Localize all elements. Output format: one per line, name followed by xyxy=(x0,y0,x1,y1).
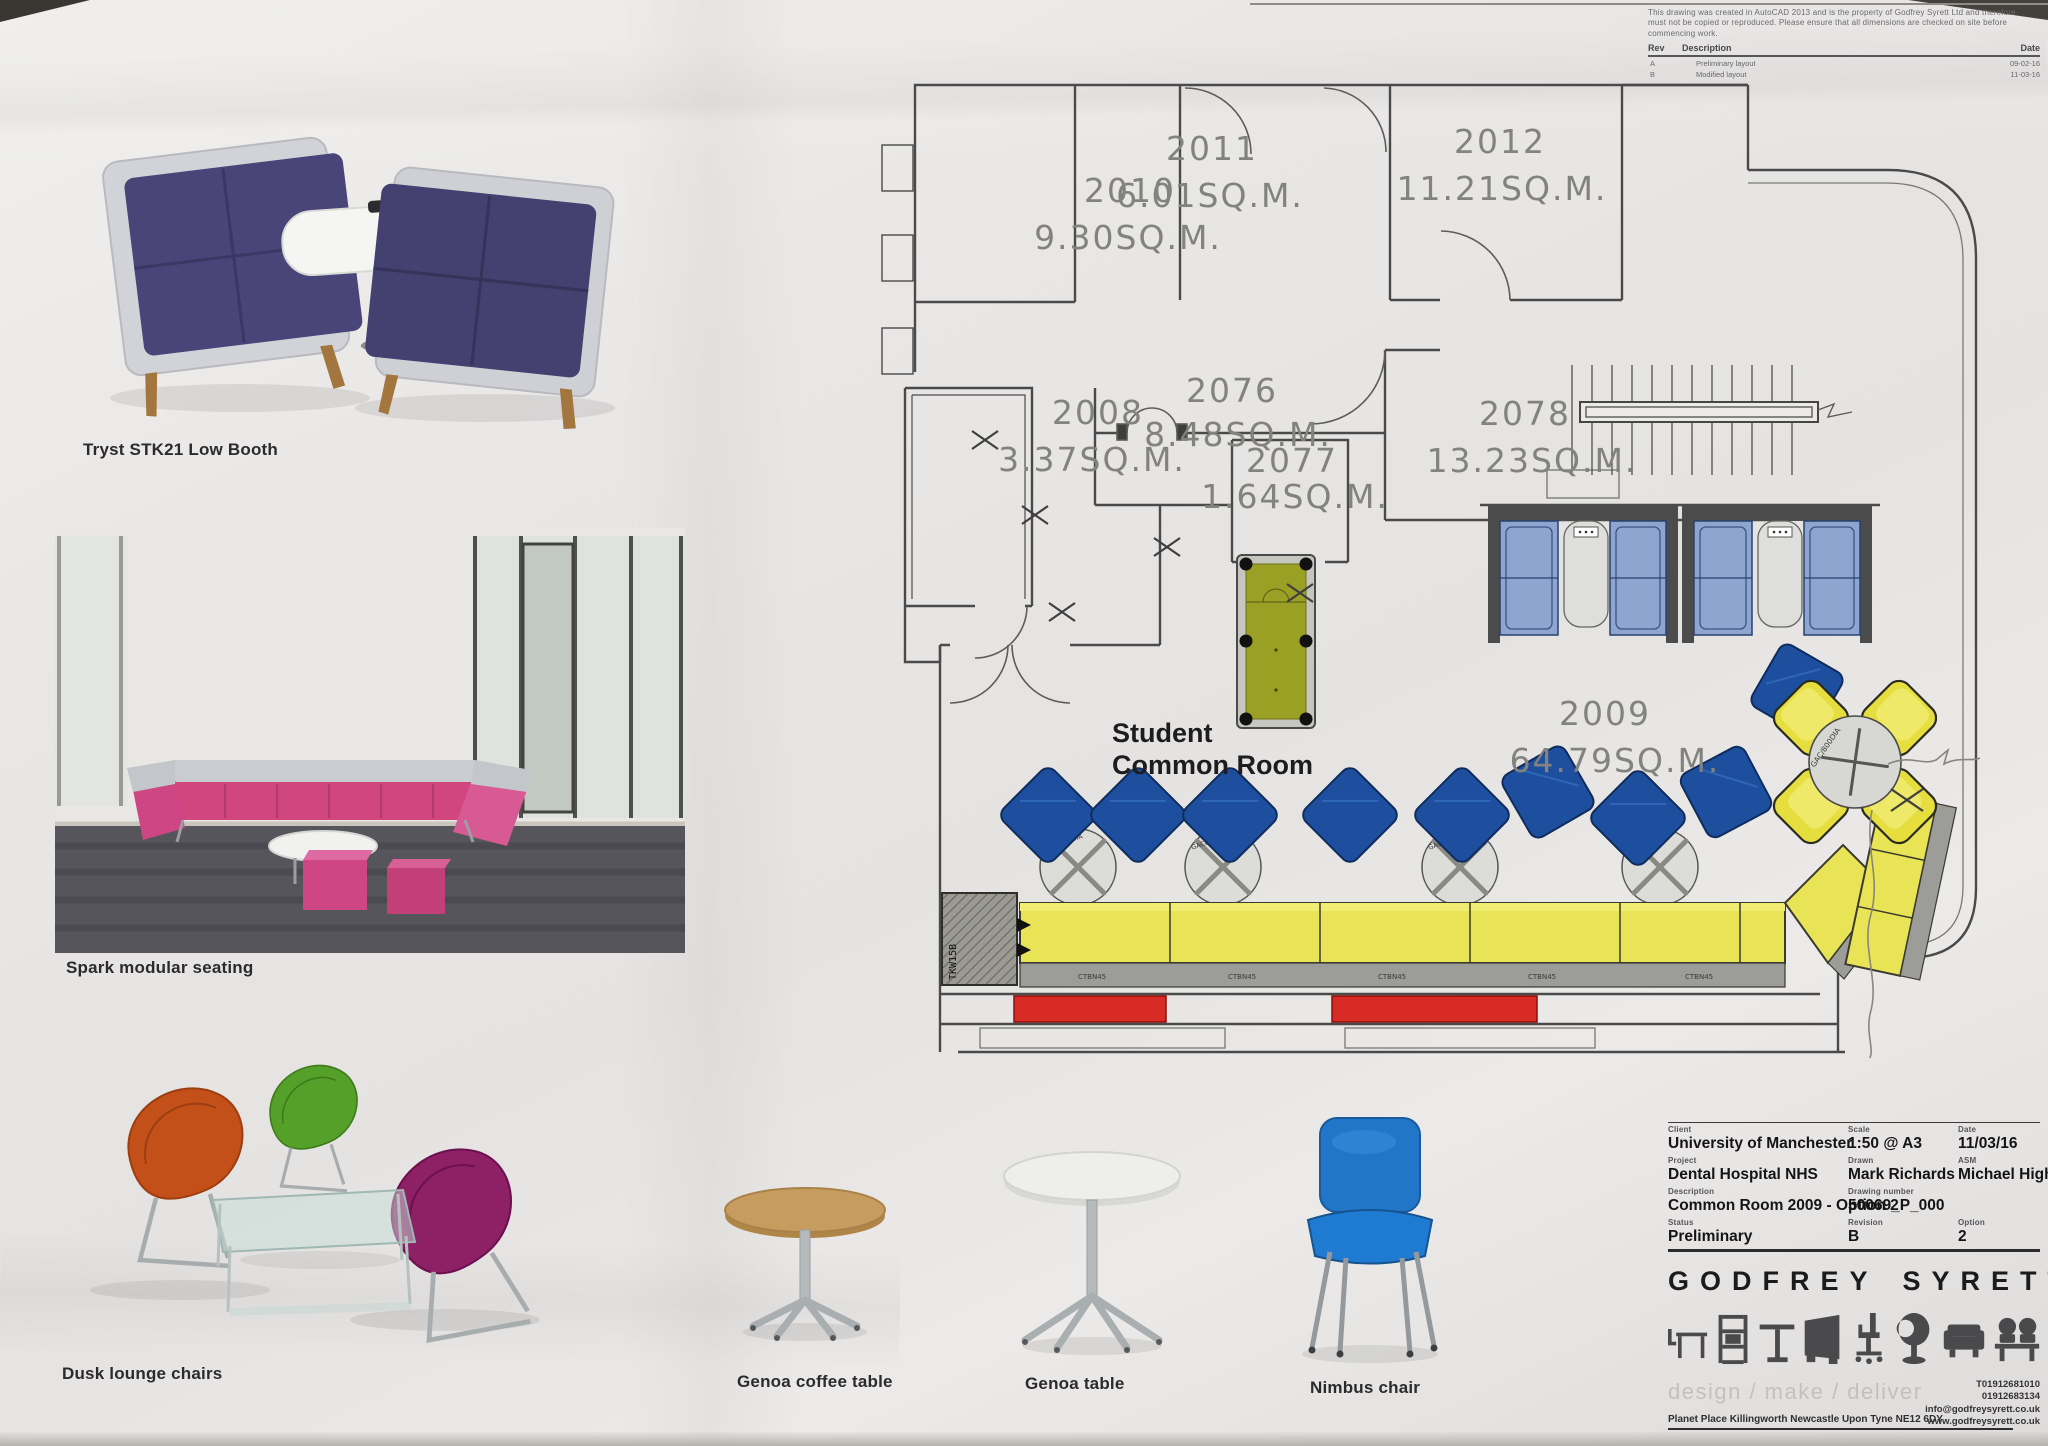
nimbus-chair-photo xyxy=(1268,1100,1463,1368)
photo-corner-shadow xyxy=(0,0,90,22)
svg-text:2076: 2076 xyxy=(1186,371,1278,410)
svg-text:CTBN45: CTBN45 xyxy=(1228,973,1256,981)
drawing-sheet-photo: This drawing was created in AutoCAD 2013… xyxy=(0,0,2048,1446)
furniture-icon-row xyxy=(1668,1309,2040,1365)
client-field: Client University of Manchester xyxy=(1668,1125,1848,1153)
svg-text:CTBN45: CTBN45 xyxy=(1685,973,1713,981)
title-block: Client University of Manchester Scale 1:… xyxy=(1668,1122,2040,1439)
spark-caption: Spark modular seating xyxy=(66,958,253,978)
room-labels: 2010 9.30SQ.M. 2011 6.01SQ.M. 2012 11.21… xyxy=(998,122,1720,780)
sheet-border-line xyxy=(1250,3,2048,5)
svg-text:1.64SQ.M.: 1.64SQ.M. xyxy=(1201,477,1389,516)
genoa-table-caption: Genoa table xyxy=(1025,1374,1125,1394)
booth-right xyxy=(358,165,615,433)
svg-text:CTBN45: CTBN45 xyxy=(1078,973,1106,981)
floor-plan: GAC600DIA GAC600DIA GAC600DIA GAC600DIA … xyxy=(880,50,2048,1125)
svg-text:13.23SQ.M.: 13.23SQ.M. xyxy=(1427,441,1638,480)
screen-icon xyxy=(1804,1313,1842,1365)
dusk-chairs-photo xyxy=(60,1040,565,1345)
svg-text:2078: 2078 xyxy=(1479,394,1571,433)
tryst-caption: Tryst STK21 Low Booth xyxy=(83,440,278,460)
wall-unit-plan: TKW15B xyxy=(942,893,1031,985)
status-field: Status Preliminary xyxy=(1668,1218,1848,1246)
svg-text:2008: 2008 xyxy=(1052,393,1144,432)
revision-field: Revision B xyxy=(1848,1218,1958,1246)
description-field: Description Common Room 2009 - Option 2 xyxy=(1668,1187,1848,1215)
radiator xyxy=(1332,996,1537,1022)
date-field: Date 11/03/16 xyxy=(1958,1125,2040,1153)
lounge-chair-icon xyxy=(1895,1313,1933,1365)
radiator xyxy=(1014,996,1166,1022)
scale-field: Scale 1:50 @ A3 xyxy=(1848,1125,1958,1153)
task-chair-icon xyxy=(1852,1313,1886,1365)
asm-field: ASM Michael Higham xyxy=(1958,1156,2040,1184)
booth-unit-plan xyxy=(1488,505,1678,643)
contact-block: T01912681010 01912683134 info@godfreysyr… xyxy=(1925,1379,2040,1428)
disclaimer-line: must not be copied or reproduced. Please… xyxy=(1648,18,2040,28)
break-line xyxy=(1818,404,1852,417)
tryst-booth-photo xyxy=(85,88,630,433)
phone-line: T01912681010 xyxy=(1925,1379,2040,1391)
svg-text:TKW15B: TKW15B xyxy=(948,944,959,980)
svg-text:11.21SQ.M.: 11.21SQ.M. xyxy=(1397,169,1608,208)
svg-text:Student: Student xyxy=(1112,718,1213,748)
svg-text:2077: 2077 xyxy=(1246,441,1338,480)
svg-text:2012: 2012 xyxy=(1454,122,1546,161)
booth-left xyxy=(101,134,371,419)
cafe-cluster-plan: GAC/800DIA xyxy=(1769,676,1942,849)
svg-text:6.01SQ.M.: 6.01SQ.M. xyxy=(1116,176,1304,215)
option-field: Option 2 xyxy=(1958,1218,2040,1246)
website-line: www.godfreysyrett.co.uk xyxy=(1925,1416,2040,1428)
godfrey-syrett-logo: GODFREY SYRETT xyxy=(1668,1266,2040,1297)
svg-text:Common Room: Common Room xyxy=(1112,750,1313,780)
booth-unit-plan xyxy=(1682,505,1872,643)
sofa-icon xyxy=(1943,1313,1985,1365)
dusk-caption: Dusk lounge chairs xyxy=(62,1364,222,1384)
disclaimer-line: This drawing was created in AutoCAD 2013… xyxy=(1648,8,2040,18)
genoa-table-photo xyxy=(985,1118,1200,1358)
svg-text:64.79SQ.M.: 64.79SQ.M. xyxy=(1510,741,1721,780)
beam-seating-icon xyxy=(1994,1313,2040,1365)
disclaimer-line: commencing work. xyxy=(1648,29,2040,39)
phone-line: 01912683134 xyxy=(1925,1391,2040,1403)
email-line: info@godfreysyrett.co.uk xyxy=(1925,1404,2040,1416)
shelving-icon xyxy=(1717,1313,1749,1365)
drawn-field: Drawn Mark Richards xyxy=(1848,1156,1958,1184)
svg-text:2009: 2009 xyxy=(1559,694,1651,733)
svg-text:9.30SQ.M.: 9.30SQ.M. xyxy=(1034,218,1222,257)
genoa-coffee-table-photo xyxy=(705,1150,910,1350)
spark-seating-photo xyxy=(55,528,685,953)
desk-icon xyxy=(1668,1313,1708,1365)
svg-text:CTBN45: CTBN45 xyxy=(1528,973,1556,981)
pool-table xyxy=(1237,555,1315,728)
title-block-rule xyxy=(1668,1249,2040,1252)
genoa-coffee-caption: Genoa coffee table xyxy=(737,1372,893,1392)
table-icon xyxy=(1759,1313,1795,1365)
drawing-number-field: Drawing number 50069_P_000 xyxy=(1848,1187,1958,1215)
green-chair xyxy=(270,1065,357,1190)
svg-text:2011: 2011 xyxy=(1166,129,1258,168)
nimbus-caption: Nimbus chair xyxy=(1310,1378,1420,1398)
project-field: Project Dental Hospital NHS xyxy=(1668,1156,1848,1184)
svg-text:CTBN45: CTBN45 xyxy=(1378,973,1406,981)
